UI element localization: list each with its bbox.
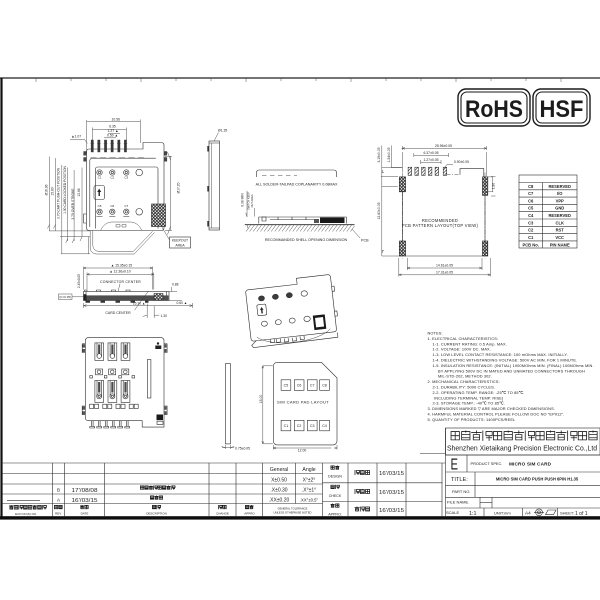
svg-text:.XX°±0.5°: .XX°±0.5° <box>300 497 319 502</box>
svg-text:2. MECHANICAL CHARACTERISTICS:: 2. MECHANICAL CHARACTERISTICS: <box>428 379 500 384</box>
svg-text:0.75±0.05: 0.75±0.05 <box>235 447 250 451</box>
svg-text:C2: C2 <box>110 176 114 180</box>
svg-text:VCC: VCC <box>555 235 564 240</box>
svg-text:Angle: Angle <box>302 467 315 473</box>
svg-text:C5: C5 <box>528 206 534 211</box>
svg-text:4. HARMFUL MATERIAL CONTROL PL: 4. HARMFUL MATERIAL CONTROL PLEASE FOLLO… <box>428 412 565 417</box>
svg-text:PRODUCT SPEC.: PRODUCT SPEC. <box>471 461 503 466</box>
svg-text:Ø1.35: Ø1.35 <box>218 129 227 133</box>
svg-text:MIL-STD-202, METHOD 302.: MIL-STD-202, METHOD 302. <box>438 374 492 379</box>
svg-text:C3: C3 <box>124 176 128 180</box>
svg-text:0.60 ▲: 0.60 ▲ <box>177 301 188 305</box>
svg-text:TITLE:: TITLE: <box>451 477 468 483</box>
svg-text:1-4. DIELECTRIC WITHSTANDING V: 1-4. DIELECTRIC WITHSTANDING VOLTAGE: 50… <box>433 358 578 363</box>
svg-text:C6: C6 <box>297 384 302 388</box>
svg-text:VPP: VPP <box>556 198 564 203</box>
svg-text:CLK: CLK <box>555 220 563 225</box>
svg-text:17'/08/08: 17'/08/08 <box>72 488 98 494</box>
svg-text:X±0.50: X±0.50 <box>271 477 287 483</box>
svg-text:KEEPOUT: KEEPOUT <box>172 239 188 243</box>
svg-text:C5: C5 <box>284 384 289 388</box>
svg-text:12.60±0.05: 12.60±0.05 <box>377 202 381 219</box>
svg-text:C8: C8 <box>528 184 534 189</box>
svg-text:.X±0.30: .X±0.30 <box>270 487 287 493</box>
svg-text:C2: C2 <box>528 228 534 233</box>
svg-text:DESIGN: DESIGN <box>328 475 342 479</box>
svg-text:25.96±0.05: 25.96±0.05 <box>435 144 452 148</box>
svg-text:REV.: REV. <box>55 512 62 516</box>
svg-text:C7: C7 <box>310 384 315 388</box>
svg-text:HSF: HSF <box>540 96 584 123</box>
svg-text:C4: C4 <box>528 213 534 218</box>
svg-text:1-3. LOW LEVEL CONTACT RESISTA: 1-3. LOW LEVEL CONTACT RESISTANCE: 100 m… <box>433 352 568 357</box>
svg-text:PIN NAME: PIN NAME <box>550 242 570 247</box>
svg-text:1-1. CURRENT RATING: 0.5 Amp.: 1-1. CURRENT RATING: 0.5 Amp. MAX. <box>433 341 507 346</box>
svg-text:GENERAL TOLERANCE: GENERAL TOLERANCE <box>278 507 308 511</box>
svg-text:RST: RST <box>556 228 565 233</box>
svg-text:C3: C3 <box>528 220 534 225</box>
svg-text:15.80: 15.80 <box>51 187 55 195</box>
svg-text:PCB PATTERN LAYOUT(TOP VIEW): PCB PATTERN LAYOUT(TOP VIEW) <box>402 223 479 228</box>
svg-text:GND: GND <box>555 206 564 211</box>
svg-text:SHEET:: SHEET: <box>560 511 574 516</box>
svg-text:1 of 1: 1 of 1 <box>575 511 588 517</box>
svg-text:1.00 CARD LOCKED POSITION: 1.00 CARD LOCKED POSITION <box>63 165 67 213</box>
svg-text:CARD CENTER: CARD CENTER <box>105 311 131 315</box>
svg-text:PCB: PCB <box>361 239 369 243</box>
svg-text:B: B <box>57 488 60 493</box>
svg-text:CHECK: CHECK <box>329 494 342 498</box>
svg-text:C1: C1 <box>528 235 534 240</box>
svg-text:1.27±0.05: 1.27±0.05 <box>423 158 438 162</box>
svg-text:.X°±1°: .X°±1° <box>302 487 316 493</box>
svg-text:RESERVED: RESERVED <box>548 184 570 189</box>
svg-text:BY APPLYING 500V DC IN MATED: BY APPLYING 500V DC IN MATED AND UNMATED… <box>438 368 585 373</box>
svg-text:2-3. STORAGE TEMP.: -40℃ TO 85: 2-3. STORAGE TEMP.: -40℃ TO 85℃. <box>433 401 505 406</box>
svg-text:C4: C4 <box>322 424 327 428</box>
svg-text:PART NO.: PART NO. <box>452 489 470 494</box>
svg-text:UNLESS OTHERWISE NOTED: UNLESS OTHERWISE NOTED <box>274 511 312 515</box>
svg-text:▲ 15.35±0.15: ▲ 15.35±0.15 <box>111 263 132 267</box>
svg-text:FILE NAME.: FILE NAME. <box>447 500 469 505</box>
svg-text:1.34±0.05: 1.34±0.05 <box>387 147 391 162</box>
svg-text:Ø17.20: Ø17.20 <box>177 182 181 193</box>
svg-text:6.35: 6.35 <box>109 125 116 129</box>
svg-text:15.00: 15.00 <box>259 395 263 404</box>
svg-text:3.70 OVER STROKE: 3.70 OVER STROKE <box>71 188 75 220</box>
svg-text:C8: C8 <box>322 384 327 388</box>
svg-text:C5: C5 <box>98 204 102 208</box>
svg-text:I/O: I/O <box>557 191 563 196</box>
svg-text:0.50 ▲: 0.50 ▲ <box>107 134 118 138</box>
svg-text:2-1. DURABILITY: 5000 CYCLES.: 2-1. DURABILITY: 5000 CYCLES. <box>433 385 496 390</box>
svg-text:CHANGE: CHANGE <box>216 512 229 516</box>
svg-text:DESCRIPTION: DESCRIPTION <box>146 512 167 516</box>
svg-text:17.31±0.05: 17.31±0.05 <box>436 271 453 275</box>
svg-text:2-2. OPERATING TEMP. RANGE: -2: 2-2. OPERATING TEMP. RANGE: -25℃ TO 85℃. <box>433 390 525 395</box>
svg-text:0.38 MIN: 0.38 MIN <box>241 193 245 207</box>
svg-text:1.80: 1.80 <box>491 183 495 189</box>
svg-text:1.27 ▲: 1.27 ▲ <box>108 129 119 133</box>
svg-text:16'/03/15: 16'/03/15 <box>72 498 98 504</box>
svg-text:CONNECTOR CENTER: CONNECTOR CENTER <box>100 280 141 284</box>
svg-text:NOTES:: NOTES: <box>428 331 443 336</box>
svg-text:3.70 CART PUSH-OUT POSITION: 3.70 CART PUSH-OUT POSITION <box>57 167 61 219</box>
svg-text:12.00: 12.00 <box>298 448 307 452</box>
svg-text:UNIT:mm: UNIT:mm <box>494 511 511 516</box>
svg-text:C7: C7 <box>528 191 534 196</box>
svg-text:0.90±0.05: 0.90±0.05 <box>454 160 469 164</box>
svg-text:APPRO.: APPRO. <box>328 513 342 517</box>
svg-text:1-5. INSULATION RESISTANCE: (I: 1-5. INSULATION RESISTANCE: (INITIAL) 10… <box>433 363 594 368</box>
svg-text:C6: C6 <box>528 198 534 203</box>
svg-text:0.88: 0.88 <box>172 283 179 287</box>
svg-text:MICRO SIM CARD PUSH PUSH 6PIN: MICRO SIM CARD PUSH PUSH 6PIN H1.35 <box>496 477 579 482</box>
svg-text:A4: A4 <box>525 511 531 516</box>
svg-text:E: E <box>451 457 459 474</box>
svg-text:16.30 ▲: 16.30 ▲ <box>133 301 145 305</box>
svg-text:16'/03/15: 16'/03/15 <box>379 471 404 477</box>
svg-text:▲ 12.36±0.10: ▲ 12.36±0.10 <box>109 270 130 274</box>
svg-text:1:1: 1:1 <box>469 511 477 517</box>
svg-text:3.19±0.05: 3.19±0.05 <box>377 147 381 162</box>
svg-text:RECOMMANDED SHELL OPENING DIME: RECOMMANDED SHELL OPENING DIMENSION <box>265 238 348 242</box>
svg-text:1-2. VOLTAGE: 100V DC. MAX.: 1-2. VOLTAGE: 100V DC. MAX. <box>433 347 491 352</box>
svg-text:16'/03/15: 16'/03/15 <box>379 490 404 496</box>
svg-text:6.37±0.05: 6.37±0.05 <box>423 151 438 155</box>
svg-text:General: General <box>270 467 288 473</box>
svg-text:3. DIMENSIONS MARKED ▽ ARE MAJ: 3. DIMENSIONS MARKED ▽ ARE MAJOR CHECKED… <box>428 406 555 411</box>
svg-text:RoHS: RoHS <box>465 96 523 123</box>
svg-text:MICRO SIM CARD: MICRO SIM CARD <box>509 461 552 466</box>
svg-text:C2: C2 <box>297 424 302 428</box>
svg-text:12.66: 12.66 <box>77 188 81 196</box>
svg-text:ALL SOLDER-TAILPAD COPLANARITY: ALL SOLDER-TAILPAD COPLANARITY 0.08MAX <box>256 182 338 186</box>
svg-text:OUT AREA: OUT AREA <box>250 194 254 207</box>
svg-text:(C=0.35): (C=0.35) <box>59 295 71 299</box>
svg-text:SIM CARD PAD LAYOUT: SIM CARD PAD LAYOUT <box>277 399 329 404</box>
svg-text:ECN NO(S) NO.: ECN NO(S) NO. <box>15 512 37 516</box>
svg-text:C6: C6 <box>110 204 114 208</box>
svg-text:Shenzhen Xietaikang Precision: Shenzhen Xietaikang Precision Electronic… <box>447 444 597 453</box>
svg-text:X°±2°: X°±2° <box>303 477 316 483</box>
svg-text:▲1.07: ▲1.07 <box>71 134 81 138</box>
svg-text:C1: C1 <box>98 176 102 180</box>
svg-text:10.56: 10.56 <box>112 117 121 121</box>
svg-text:C1: C1 <box>284 424 289 428</box>
svg-text:.XX±0.20: .XX±0.20 <box>269 497 290 503</box>
svg-text:RESERVED: RESERVED <box>548 213 570 218</box>
svg-text:2.45±0.05: 2.45±0.05 <box>77 274 81 288</box>
svg-text:5. QUANTITY OF PRODUCTS: 1400P: 5. QUANTITY OF PRODUCTS: 1400PCS/REEL <box>428 417 517 422</box>
svg-text:AREA: AREA <box>175 243 185 247</box>
svg-text:C3: C3 <box>310 424 315 428</box>
svg-text:14.61±0.05: 14.61±0.05 <box>436 264 453 268</box>
svg-text:PCB No.: PCB No. <box>523 242 539 247</box>
svg-text:APPRO: APPRO <box>244 512 255 516</box>
svg-text:DATE: DATE <box>81 512 89 516</box>
svg-text:SCALE: SCALE <box>446 510 459 515</box>
svg-text:C7: C7 <box>124 204 128 208</box>
svg-text:Ø16.96: Ø16.96 <box>45 184 49 195</box>
svg-text:16'/03/15: 16'/03/15 <box>379 508 404 514</box>
svg-text:1.30: 1.30 <box>161 314 168 318</box>
svg-text:1. ELECTRICAL CHARACTERISTICS:: 1. ELECTRICAL CHARACTERISTICS: <box>428 336 499 341</box>
svg-text:INCLUDING TERMINAL TEMP. RISE]: INCLUDING TERMINAL TEMP. RISE] <box>434 395 503 400</box>
